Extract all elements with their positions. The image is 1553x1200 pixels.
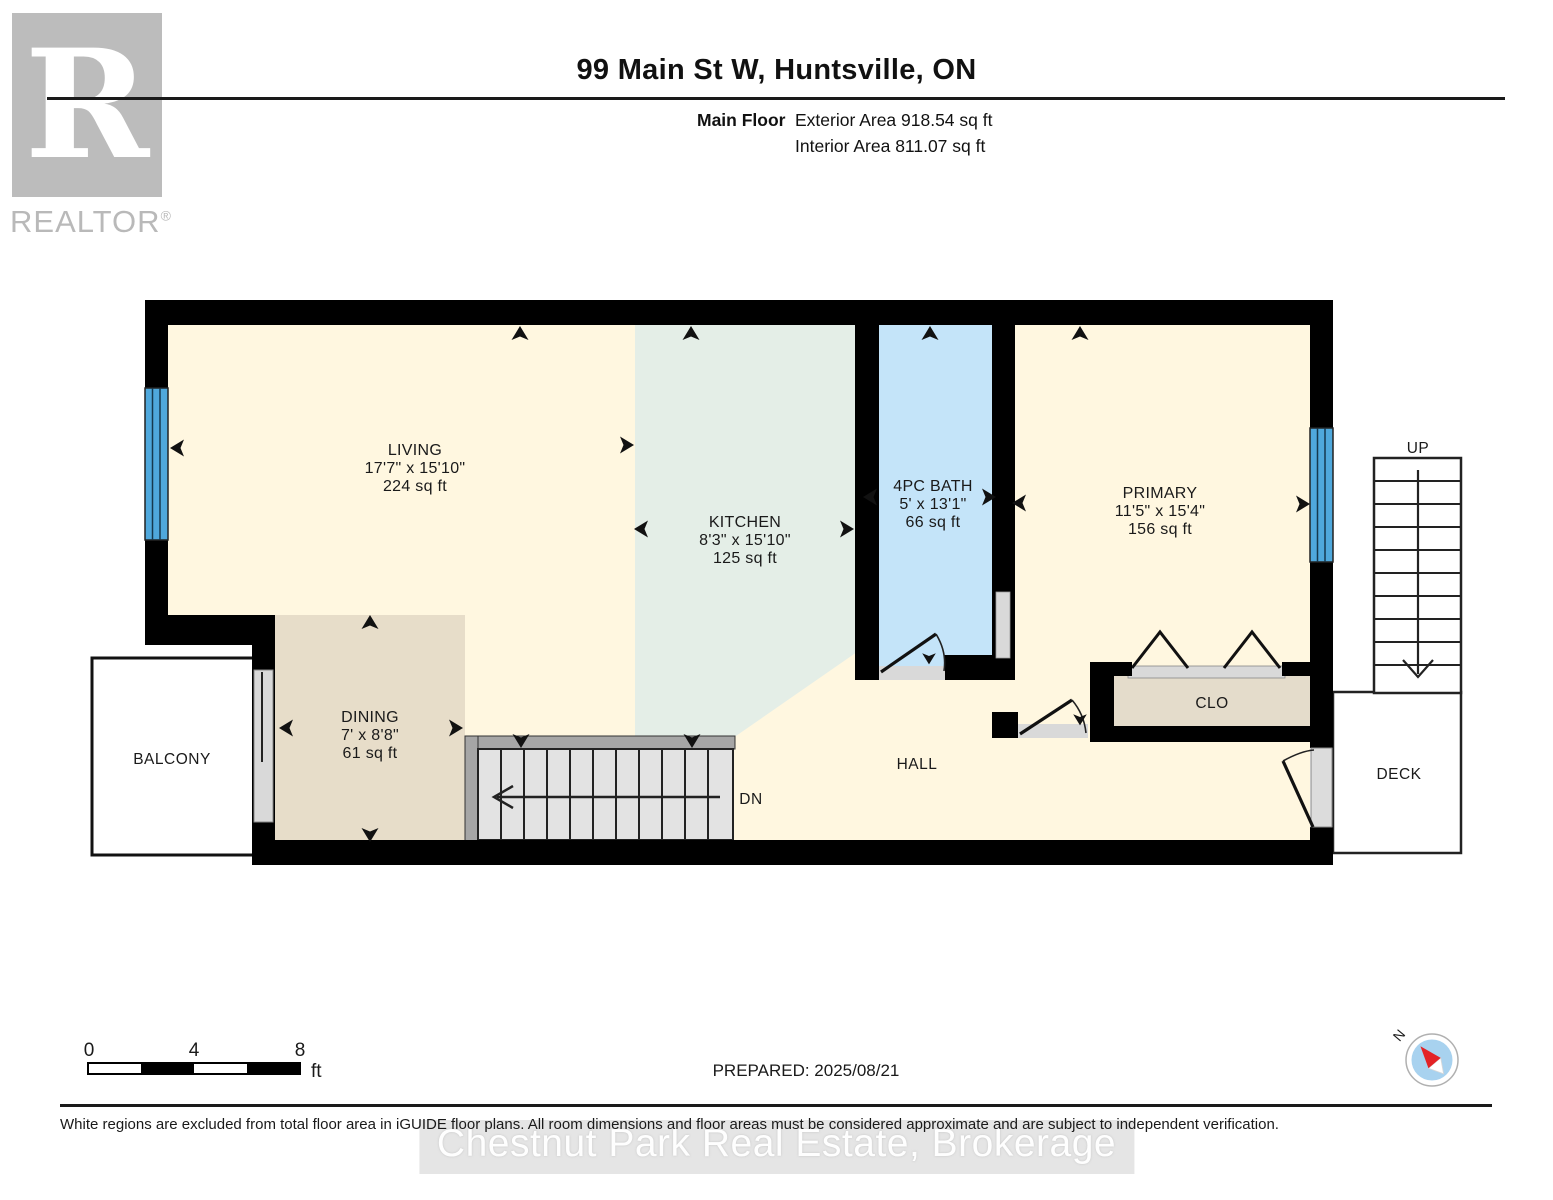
living-label: LIVING — [388, 442, 442, 459]
primary-door-threshold — [1018, 724, 1088, 738]
wall-right-lower — [1310, 827, 1333, 865]
staircase-up — [1374, 458, 1461, 693]
kitchen-area: 125 sq ft — [713, 550, 777, 567]
bath-dims: 5' x 13'1" — [899, 496, 966, 513]
disclaimer-text: White regions are excluded from total fl… — [60, 1116, 1279, 1133]
staircase-down-left-rail — [465, 736, 478, 842]
dining-label: DINING — [341, 709, 399, 726]
wall-closet-bottom — [1090, 726, 1333, 742]
primary-label: PRIMARY — [1123, 485, 1198, 502]
window-living-left — [145, 388, 168, 540]
dining-area: 61 sq ft — [343, 745, 398, 762]
kitchen-label: KITCHEN — [709, 514, 781, 531]
deck-door-panel — [1311, 748, 1332, 827]
wall-top — [145, 300, 1333, 325]
prepared-date: PREPARED: 2025/08/21 — [713, 1061, 900, 1080]
wall-closet-top-left-stub — [1114, 662, 1132, 676]
compass: N — [1390, 1026, 1458, 1086]
closet-shelf — [1128, 666, 1285, 678]
deck-label: DECK — [1376, 766, 1421, 783]
primary-area: 156 sq ft — [1128, 521, 1192, 538]
footer-divider — [60, 1104, 1492, 1107]
wall-bottom — [252, 840, 1333, 865]
living-dims: 17'7" x 15'10" — [365, 460, 466, 477]
balcony-label: BALCONY — [133, 751, 211, 768]
bath-wall-niche — [996, 592, 1010, 658]
wall-right-middle — [1310, 562, 1333, 748]
balcony-sliding-door — [254, 670, 273, 822]
scale-tick-8: 8 — [295, 1040, 306, 1061]
wall-closet-top-right-stub — [1282, 662, 1310, 676]
scale-tick-0: 0 — [84, 1040, 95, 1061]
closet-label: CLO — [1195, 695, 1228, 712]
scale-unit: ft — [311, 1061, 322, 1082]
wall-primary-door-stub — [992, 712, 1018, 738]
living-area: 224 sq ft — [383, 478, 447, 495]
stairs-down-label: DN — [739, 791, 762, 808]
staircase-down — [465, 736, 735, 842]
floorplan-page: R REALTOR® 99 Main St W, Huntsville, ON … — [0, 0, 1553, 1200]
dining-dims: 7' x 8'8" — [341, 727, 399, 744]
wall-right-upper — [1310, 300, 1333, 428]
scale-tick-4: 4 — [189, 1040, 200, 1061]
floorplan-canvas: LIVING 17'7" x 15'10" 224 sq ft KITCHEN … — [0, 0, 1553, 1200]
staircase-down-treads-area — [478, 749, 733, 840]
stairs-up-label: UP — [1407, 440, 1430, 457]
compass-north-label: N — [1390, 1026, 1409, 1044]
primary-dims: 11'5" x 15'4" — [1115, 503, 1205, 520]
wall-living-step — [145, 615, 275, 645]
scale-bar: 0 4 8 ft — [84, 1040, 323, 1082]
kitchen-dims: 8'3" x 15'10" — [699, 532, 791, 549]
bath-area: 66 sq ft — [906, 514, 961, 531]
bath-label: 4PC BATH — [893, 478, 972, 495]
window-primary-right — [1310, 428, 1333, 562]
hall-label: HALL — [897, 756, 938, 773]
